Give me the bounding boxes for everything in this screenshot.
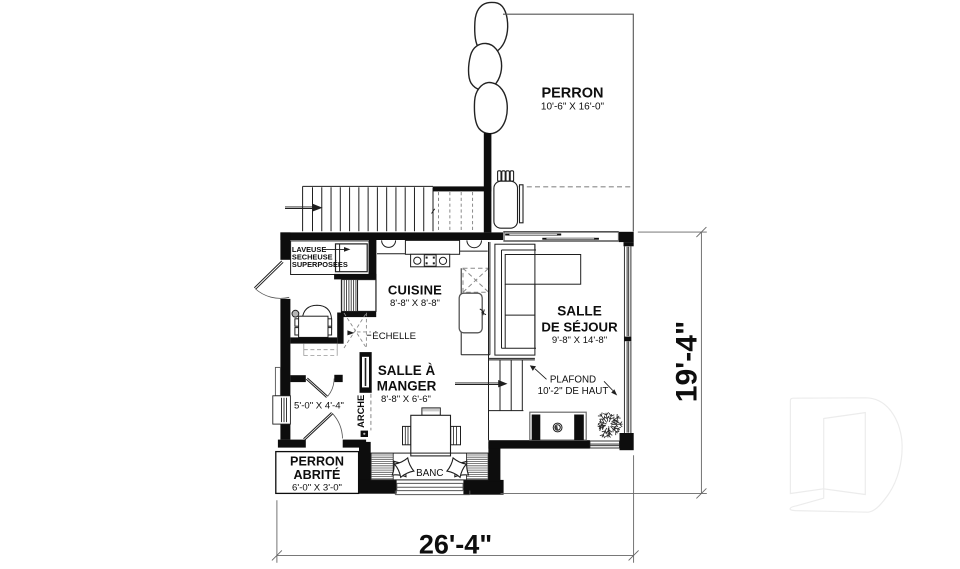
svg-text:ÉCHELLE: ÉCHELLE (372, 331, 416, 342)
svg-text:SALLE: SALLE (557, 303, 602, 318)
svg-text:ABRITÉ: ABRITÉ (294, 467, 341, 482)
svg-text:8'-8" X 6'-6": 8'-8" X 6'-6" (381, 394, 431, 405)
svg-text:DE SÉJOUR: DE SÉJOUR (541, 320, 618, 335)
svg-text:9'-8" X 14'-8": 9'-8" X 14'-8" (552, 335, 607, 346)
svg-text:8'-8" X 8'-8": 8'-8" X 8'-8" (390, 298, 440, 309)
svg-text:PLAFOND: PLAFOND (550, 375, 596, 386)
svg-text:5'-0" X 4'-4": 5'-0" X 4'-4" (294, 400, 344, 411)
svg-text:19'-4": 19'-4" (671, 321, 704, 402)
svg-text:10'-2" DE HAUT: 10'-2" DE HAUT (538, 386, 609, 397)
svg-text:CUISINE: CUISINE (388, 283, 442, 298)
svg-text:SUPERPOSÉES: SUPERPOSÉES (292, 260, 348, 269)
svg-text:MANGER: MANGER (377, 378, 437, 393)
svg-text:10'-6" X 16'-0": 10'-6" X 16'-0" (541, 102, 605, 113)
svg-text:6'-0" X 3'-0": 6'-0" X 3'-0" (292, 483, 342, 494)
svg-text:BANC: BANC (416, 468, 443, 479)
svg-text:PERRON: PERRON (541, 86, 603, 102)
svg-text:ARCHE: ARCHE (356, 395, 366, 428)
svg-text:26'-4": 26'-4" (419, 530, 492, 560)
svg-text:SALLE À: SALLE À (378, 363, 436, 378)
svg-text:PERRON: PERRON (290, 455, 344, 469)
